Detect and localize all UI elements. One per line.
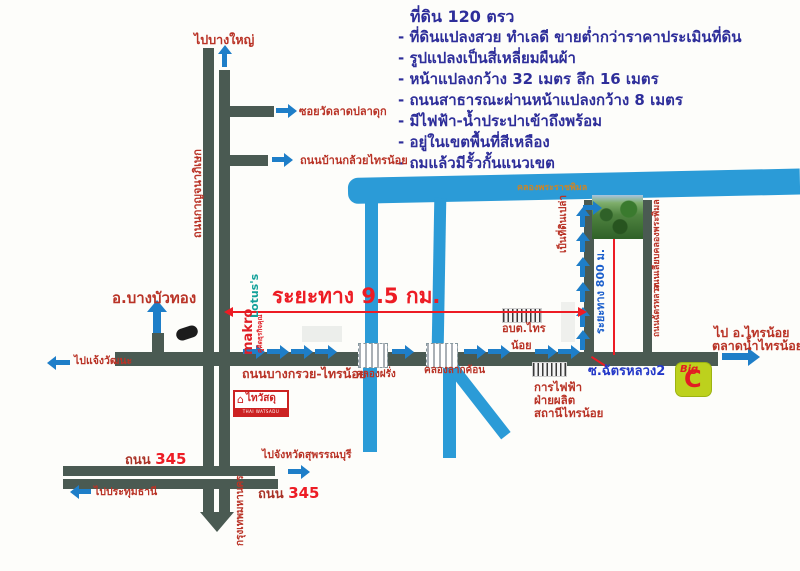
land-info-line: - ถมแล้วมีรั้วกั้นแนวเขต: [398, 153, 742, 174]
label-egat-line2: ฝ่ายผลิต: [534, 395, 575, 407]
label-egat-line1: การไฟฟ้า: [534, 382, 582, 394]
bridge-khlong-farang: [358, 343, 388, 368]
label-chat-luang-road: ถนนฉัตรหลวง: [653, 285, 662, 337]
thaiwatsadu-logo: ⌂ ไทวัสดุ THAI WATSADU: [233, 390, 289, 417]
label-road-along-khlong: ถนนเลียบคลองพระพิมล: [653, 199, 662, 291]
measure-line-800m: [613, 239, 615, 355]
label-khlong-phra-racha-phimon: คลองพระราชพิมล: [517, 184, 587, 193]
arrow-right-suphanburi: [288, 469, 301, 474]
label-khlong-lak-khon: คลองลากค้อน: [424, 366, 485, 376]
building-icon-market: [532, 362, 567, 377]
label-to-pathum-thani: ไปประทุมธานี: [94, 487, 157, 498]
land-info-panel: ที่ดิน 120 ตรว - ที่ดินแปลงสวย ทำเลดี ขา…: [398, 6, 742, 174]
arrow-left-chaeng-watthana: [56, 360, 70, 365]
sketch-mark: [302, 326, 342, 342]
road-kanchanaphisek-west-bar: [203, 48, 214, 467]
arrow-up-soi: [580, 216, 585, 227]
label-bang-bua-thong: อ.บางบัวทอง: [112, 291, 196, 306]
arrow-route: [291, 349, 304, 354]
bigc-c-text: C: [684, 367, 702, 391]
makro-tagline: คู่คิดธุรกิจคุณ: [257, 315, 264, 354]
road-ban-kluai: [225, 155, 268, 166]
arrow-left-pathum-thani: [79, 489, 91, 494]
arrow-right-soi-wat: [276, 108, 288, 113]
land-info-line: - ถนนสาธารณะผ่านหน้าแปลงกว้าง 8 เมตร: [398, 90, 742, 111]
arrow-route: [267, 349, 280, 354]
arrow-route: [535, 349, 548, 354]
canal-farang-upper: [365, 198, 378, 348]
label-route-345-right: ถนน 345: [258, 486, 320, 501]
makro-logo: makro: [242, 309, 255, 355]
land-info-line: - อยู่ในเขตพื้นที่สีเหลือง: [398, 132, 742, 153]
label-distance-800m: ระยะทาง 800 ม.: [595, 249, 606, 334]
road-kanchanaphisek-east-bar: [219, 70, 230, 467]
arrow-route: [464, 349, 477, 354]
arrow-right-sai-noi: [722, 353, 748, 360]
arrow-up-soi: [580, 266, 585, 277]
land-info-line: - หน้าแปลงกว้าง 32 เมตร ลึก 16 เมตร: [398, 69, 742, 90]
map-canvas: ที่ดิน 120 ตรว - ที่ดินแปลงสวย ทำเลดี ขา…: [0, 0, 800, 571]
label-sao-sai-noi-line2: น้อย: [511, 340, 532, 351]
sketch-mark: [561, 302, 575, 342]
label-egat-line3: สถานีไทรน้อย: [534, 408, 603, 420]
label-to-suphanburi: ไปจังหวัดสุพรรณบุรี: [262, 450, 352, 461]
road-south-arrow: [200, 512, 234, 532]
label-soi-wat-lat-pla-duk: ซอยวัดลาดปลาดุก: [299, 106, 387, 117]
arrow-right-ban-kluai: [272, 157, 284, 162]
measure-line-9-5km: [233, 311, 579, 313]
label-soi-chat-luang-2: ซ.ฉัตรหลวง2: [588, 365, 665, 378]
road-plot-east: [643, 200, 652, 356]
land-info-line: - มีไฟฟ้า-น้ำประปาเข้าถึงพร้อม: [398, 111, 742, 132]
label-kanchanaphisek-road: ถนนกาญจนาภิเษก: [192, 149, 203, 238]
land-info-line: - ที่ดินแปลงสวย ทำเลดี ขายต่ำกว่าราคาประ…: [398, 27, 742, 48]
route-345-number: 345: [288, 484, 319, 502]
thaiwatsadu-house-icon: ⌂: [237, 394, 244, 405]
road-soi-wat-lat-pla-duk: [225, 106, 274, 117]
arrow-route: [392, 349, 405, 354]
label-to-sai-noi-line2: ตลาดน้ำไทรน้อย: [712, 340, 800, 353]
arrow-up-bang-yai: [222, 54, 227, 67]
arrow-up-soi: [580, 291, 585, 302]
thaiwatsadu-name: ไทวัสดุ: [246, 394, 276, 404]
road-bang-bua-thong-stub: [152, 333, 164, 354]
measure-line-left-head: [224, 307, 233, 317]
route-345-word: ถนน: [258, 487, 284, 502]
road-kanchanaphisek-south-west-bar: [203, 489, 214, 514]
route-345-number: 345: [155, 450, 186, 468]
arrow-up-soi: [580, 241, 585, 252]
land-info-line: - รูปแปลงเป็นสี่เหลี่ยมผืนผ้า: [398, 48, 742, 69]
canal-lak-khon-upper: [432, 198, 447, 348]
label-to-chaeng-watthana: ไปแจ้งวัฒนะ: [74, 356, 132, 367]
route-345-word: ถนน: [125, 453, 151, 468]
label-to-bangkok: กรุงเทพมหานคร: [236, 475, 246, 546]
arrow-up-soi: [580, 339, 585, 350]
arrow-route: [488, 349, 501, 354]
arrow-route: [315, 349, 328, 354]
land-info-title: ที่ดิน 120 ตรว: [410, 6, 742, 27]
bigc-logo: Big C: [676, 363, 711, 396]
label-bang-kruai-road: ถนนบางกรวย-ไทรน้อย: [242, 368, 366, 381]
arrow-up-bang-bua-thong: [153, 312, 161, 333]
measure-line-right-head: [578, 307, 587, 317]
thaiwatsadu-subtitle: THAI WATSADU: [235, 408, 287, 415]
label-ban-kluai-road: ถนนบ้านกล้วยไทรน้อย: [300, 155, 408, 166]
road-kanchanaphisek-south-east-bar: [219, 489, 230, 514]
label-distance-9-5km: ระยะทาง 9.5 กม.: [272, 286, 440, 307]
label-khlong-farang: คลองฝรั่ง: [356, 370, 396, 380]
arrow-right-plot-entrance: [583, 205, 593, 210]
label-sao-sai-noi-line1: อบต.ไทร: [502, 323, 546, 334]
arrow-route: [558, 349, 571, 354]
arrow-up-soi: [580, 316, 585, 327]
label-to-bang-yai: ไปบางใหญ่: [194, 34, 254, 47]
interchange-mark: [175, 324, 200, 342]
label-route-345-left: ถนน 345: [125, 452, 187, 467]
label-empty-land: เป็นที่ดินเปล่า: [559, 195, 569, 253]
